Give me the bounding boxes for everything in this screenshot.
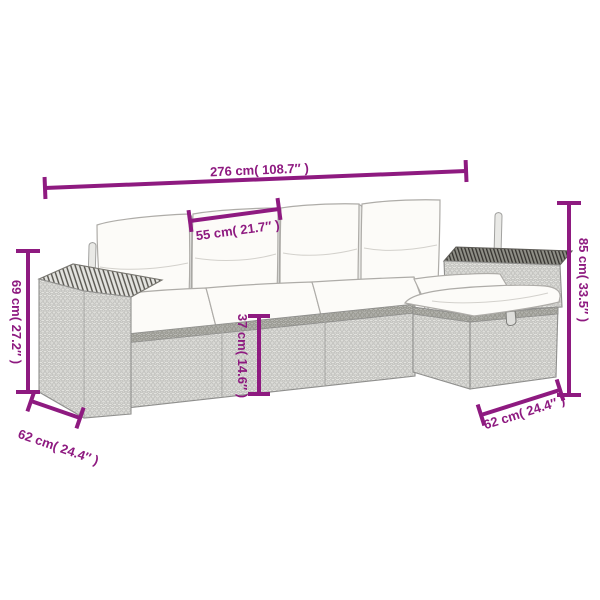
dimension-label: 85 cm( 33.5″ ) [576, 238, 591, 322]
dimension-label: 37 cm( 14.6″ ) [235, 314, 250, 398]
dimension-label: 62 cm( 24.4″ ) [16, 426, 101, 468]
sofa-illustration [39, 200, 572, 418]
back-pillow-4 [361, 200, 440, 288]
back-pillow-3 [280, 204, 359, 292]
product-dimension-illustration: 276 cm( 108.7″ ) 55 cm( 21.7″ ) 85 cm( 3… [0, 0, 600, 600]
ottoman-clip-handle [506, 311, 516, 326]
dimension-armrest-height: 69 cm( 27.2″ ) [9, 251, 40, 392]
dimension-cap [466, 160, 467, 182]
dimension-label: 69 cm( 27.2″ ) [9, 280, 24, 364]
left-armrest-front [39, 279, 131, 418]
product-image-canvas: 276 cm( 108.7″ ) 55 cm( 21.7″ ) 85 cm( 3… [0, 0, 600, 600]
dimension-depth-right: 62 cm( 24.4″ ) [478, 379, 567, 432]
dimension-cap [45, 177, 46, 199]
dimension-total-width: 276 cm( 108.7″ ) [44, 154, 466, 199]
